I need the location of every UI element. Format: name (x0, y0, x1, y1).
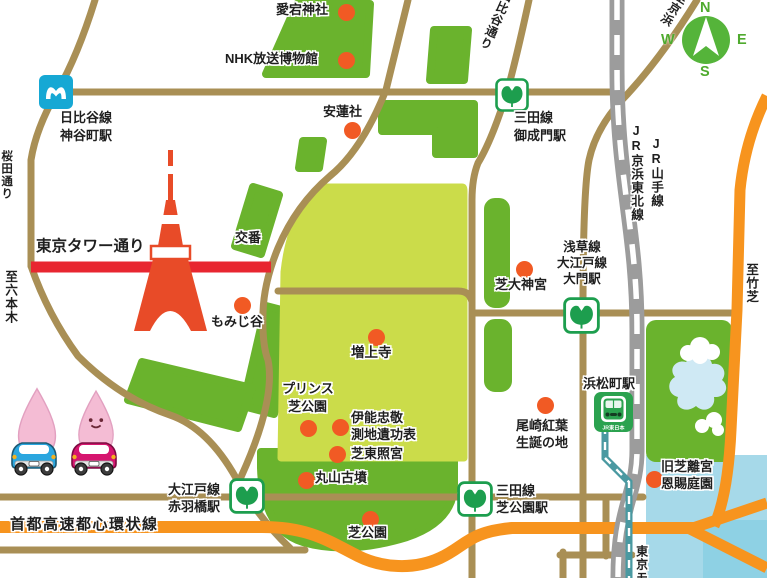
compass-label-west: W (661, 32, 675, 48)
station-label-shibakoen-line: 三田線 (496, 484, 535, 498)
park-sliver (299, 141, 323, 168)
poi-dot-atago (338, 4, 355, 21)
blue-car-icon (12, 443, 56, 475)
poi-label-momijidani: もみじ谷 (211, 315, 263, 329)
park-daijingu-south (488, 323, 508, 388)
rail-label-jr-yamanote: JR山手線 (649, 137, 662, 208)
poi-label-maruyama: 丸山古墳 (315, 471, 367, 485)
poi-dot-anrenja (344, 122, 361, 139)
station-label-akabanebashi-name: 赤羽橋駅 (160, 500, 220, 514)
jr-east-caption: JR東日本 (602, 424, 625, 432)
poi-label-kyushiba-line2: 恩賜庭園 (661, 477, 713, 491)
poi-dot-momijidani (234, 297, 251, 314)
poi-label-prince-line2: 芝公園 (288, 400, 327, 414)
jr-station-hamamatsucho: JR東日本 (594, 392, 633, 432)
rail-label-jr-keihin-tohoku: JR京浜東北線 (629, 124, 642, 222)
poi-dot-maruyama (298, 472, 315, 489)
park-west-wedge (128, 362, 252, 428)
map-artwork: JR東日本 (0, 0, 767, 578)
compass-rose (682, 16, 730, 64)
compass-label-south: S (700, 64, 710, 80)
street-label-tokyo-tower-street: 東京タワー通り (36, 239, 145, 255)
poi-label-shibakoen-park: 芝公園 (348, 526, 387, 540)
poi-label-ozaki-line2: 生誕の地 (516, 436, 568, 450)
compass-label-north: N (700, 0, 710, 16)
toei-station-akabanebashi (231, 480, 264, 513)
station-label-hamamatsucho: 浜松町駅 (583, 377, 635, 391)
kyu-shiba-rikyu-garden (646, 320, 732, 462)
illustrated-tourist-map: JR東日本 (0, 0, 767, 578)
poi-label-anrenja: 安蓮社 (323, 105, 362, 119)
toei-station-shibakoen (459, 483, 492, 516)
street-label-to-roppongi: 至六本木 (3, 270, 16, 324)
toei-station-daimon (565, 299, 599, 333)
station-label-akabanebashi-line: 大江戸線 (160, 483, 220, 497)
compass-label-east: E (737, 32, 747, 48)
poi-label-prince-line1: プリンス (282, 382, 334, 396)
poi-label-zojoji: 増上寺 (351, 346, 392, 360)
station-label-daimon-line1: 浅草線 (548, 241, 616, 254)
poi-dot-nhk (338, 52, 355, 69)
rail-label-tokyo-monorail: 東京モ (635, 545, 648, 578)
poi-dot-ozaki (537, 397, 554, 414)
station-label-kamiyacho-name: 神谷町駅 (60, 129, 112, 143)
mascot-cars (12, 389, 116, 475)
poi-dot-shiba-daijingu (516, 261, 533, 278)
poi-label-kyushiba-line1: 旧芝離宮 (661, 460, 713, 474)
poi-label-inou-line2: 測地遺功表 (351, 428, 416, 442)
label-police-box: 交番 (235, 231, 261, 245)
poi-dot-toshogu (329, 446, 346, 463)
street-label-sakurada: 桜田通り (0, 150, 12, 200)
pink-car-icon (72, 443, 116, 475)
street-label-to-takeshiba: 至竹芝 (744, 263, 757, 304)
park-onarimon-west (382, 104, 474, 154)
poi-dot-inou (332, 419, 349, 436)
toei-station-onarimon (497, 80, 528, 111)
station-label-onarimon-line: 三田線 (514, 111, 553, 125)
poi-label-atago: 愛宕神社 (276, 3, 328, 17)
station-label-onarimon-name: 御成門駅 (514, 129, 566, 143)
poi-label-toshogu: 芝東照宮 (351, 447, 403, 461)
poi-label-shiba-daijingu: 芝大神宮 (495, 278, 547, 292)
poi-dot-zojoji (368, 329, 385, 346)
poi-dot-prince (300, 420, 317, 437)
road-southwest-diagonal (31, 266, 236, 478)
station-label-daimon-name: 大門駅 (548, 273, 616, 286)
poi-label-nhk: NHK放送博物館 (225, 52, 318, 66)
station-label-daimon-line2: 大江戸線 (548, 257, 616, 270)
station-label-shibakoen-name: 芝公園駅 (496, 501, 548, 515)
station-label-kamiyacho-line: 日比谷線 (60, 111, 112, 125)
park-small-top (430, 30, 468, 80)
metro-station-kamiyacho (39, 75, 73, 109)
street-label-expressway: 首都高速都心環状線 (10, 517, 159, 533)
poi-label-inou-line1: 伊能忠敬 (351, 411, 403, 425)
poi-label-ozaki-line1: 尾崎紅葉 (516, 419, 568, 433)
